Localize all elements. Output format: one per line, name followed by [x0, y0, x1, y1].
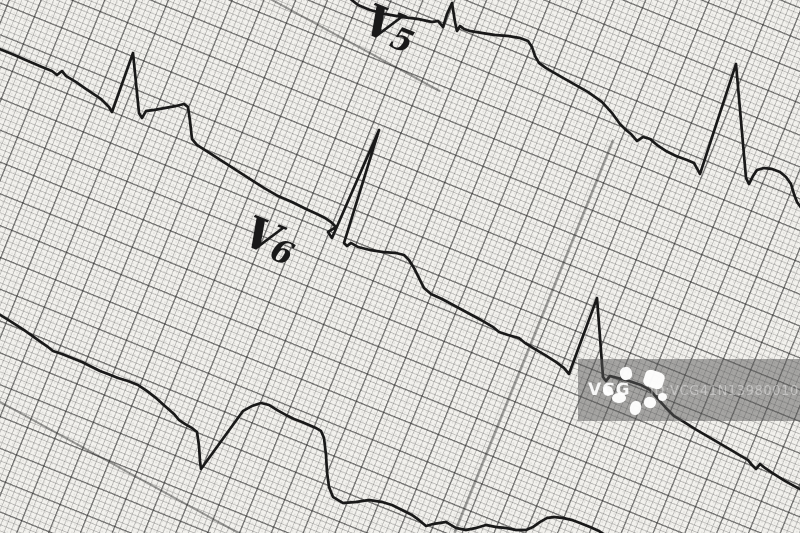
ecg-photo: V5 V6 VCG ID:VCG41N1398001037	[0, 0, 800, 533]
ecg-trace-v6-row	[0, 48, 800, 490]
ecg-traces	[0, 0, 800, 533]
watermark-id-text: ID:VCG41N1398001037	[650, 384, 800, 399]
ecg-trace-bottom-row	[0, 313, 606, 533]
stock-watermark: VCG ID:VCG41N1398001037	[578, 359, 800, 421]
